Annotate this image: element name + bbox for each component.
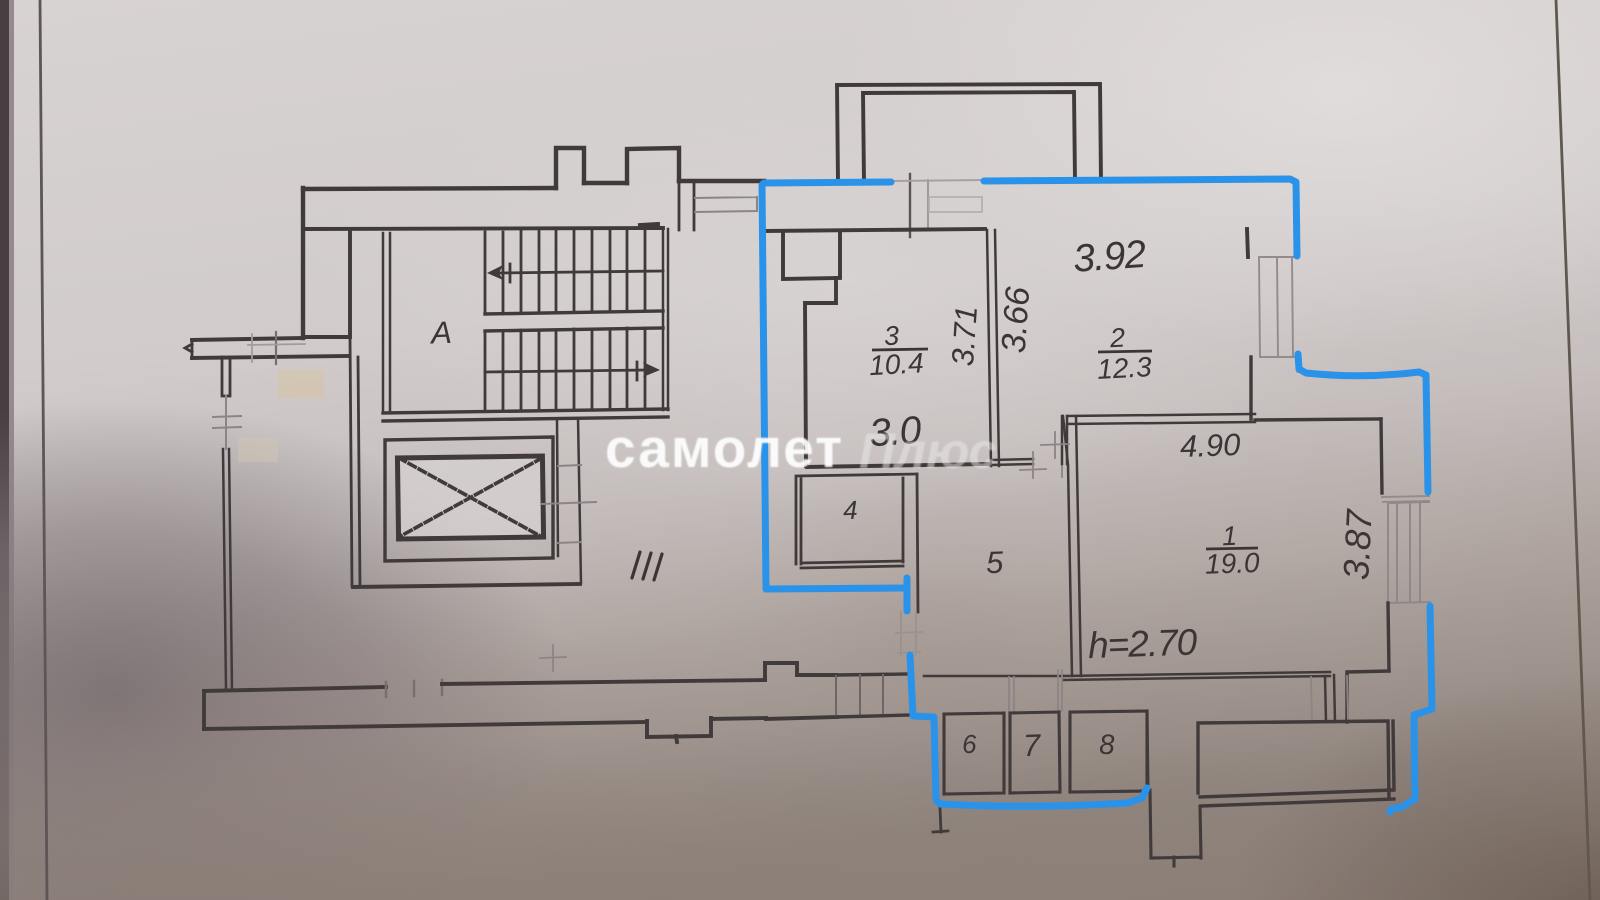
svg-text:самолет: самолет — [605, 417, 844, 479]
svg-text:7: 7 — [1022, 728, 1042, 764]
svg-text:3: 3 — [883, 321, 900, 352]
svg-text:3.71: 3.71 — [945, 305, 984, 368]
svg-text:4.90: 4.90 — [1179, 427, 1241, 464]
svg-text:12.3: 12.3 — [1096, 351, 1152, 385]
svg-text:h=2.70: h=2.70 — [1087, 621, 1198, 666]
svg-text:3.66: 3.66 — [995, 286, 1038, 355]
svg-text:10.4: 10.4 — [868, 347, 924, 381]
svg-text:3.87: 3.87 — [1335, 507, 1380, 581]
svg-text:3.92: 3.92 — [1072, 233, 1148, 281]
svg-text:4: 4 — [842, 495, 858, 525]
svg-text:2: 2 — [1108, 322, 1126, 353]
svg-text:Плюс: Плюс — [859, 423, 997, 479]
svg-text:5: 5 — [985, 545, 1004, 581]
svg-text:8: 8 — [1098, 729, 1115, 761]
svg-text:A: A — [428, 315, 452, 351]
svg-text:19.0: 19.0 — [1205, 547, 1261, 580]
svg-text:1: 1 — [1221, 521, 1237, 552]
svg-text:6: 6 — [961, 729, 977, 760]
